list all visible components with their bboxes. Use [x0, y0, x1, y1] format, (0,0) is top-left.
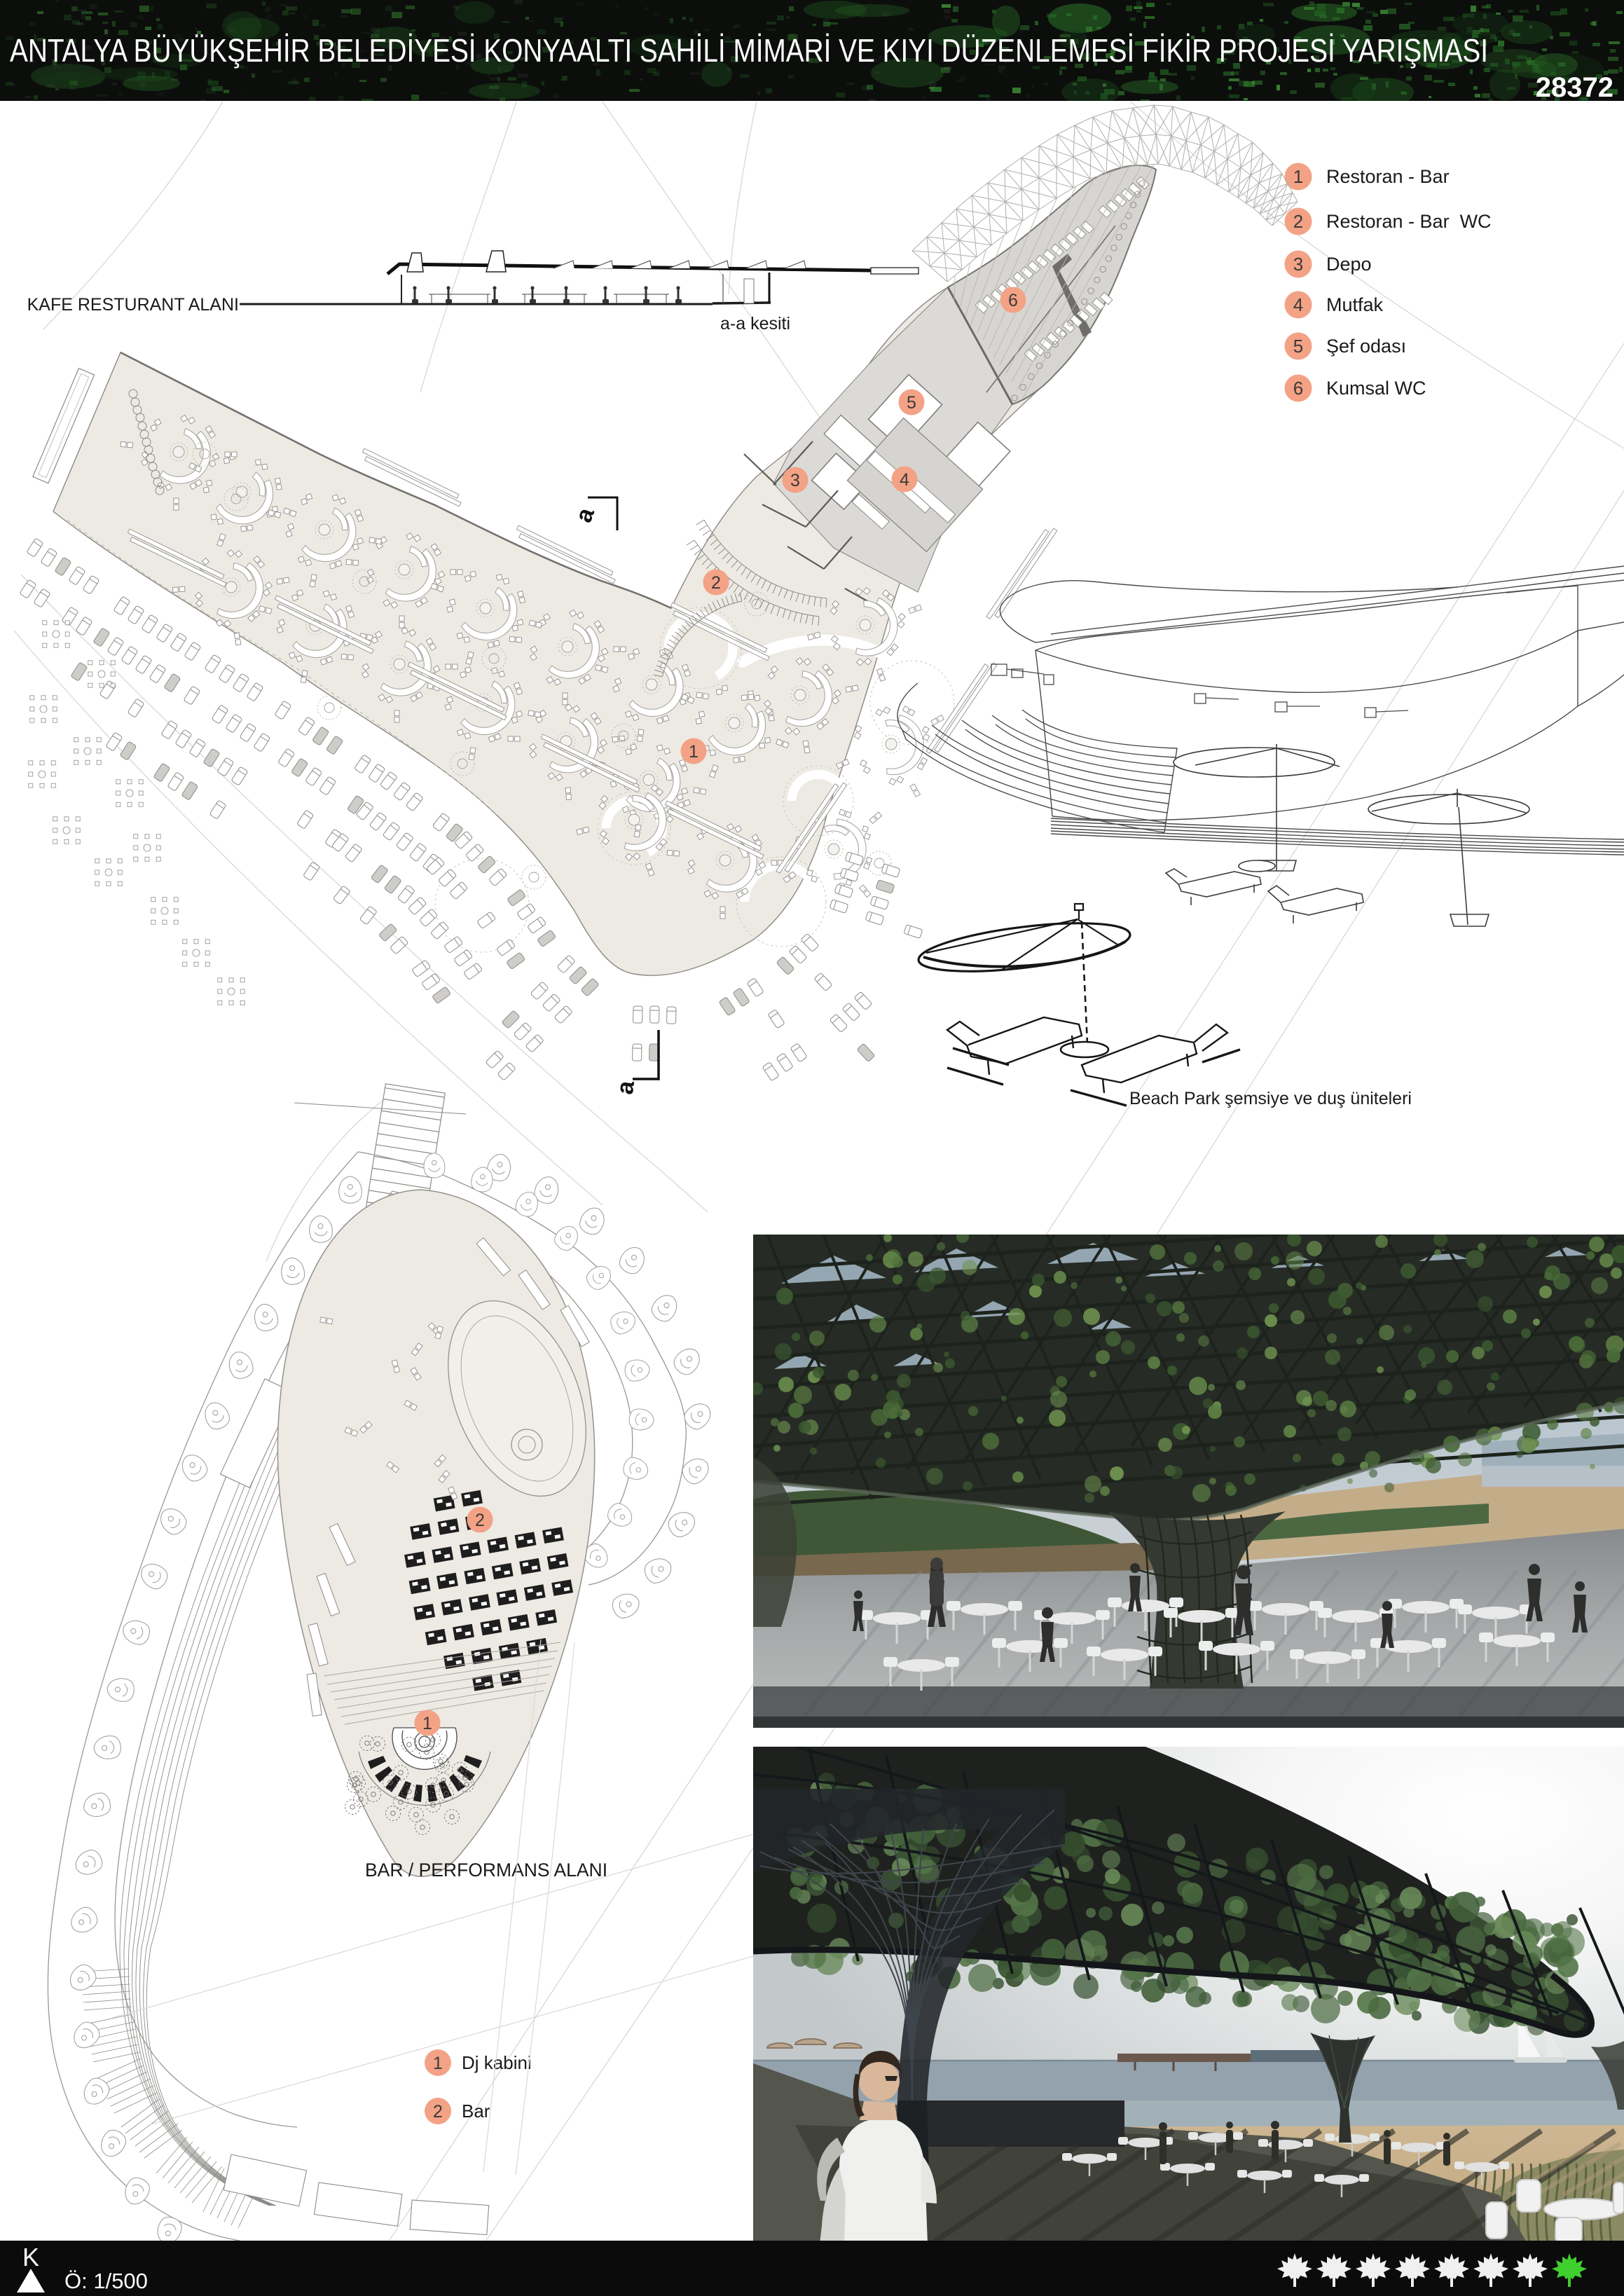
svg-text:Ö: 1/500: Ö: 1/500 [64, 2269, 148, 2293]
svg-text:Restoran - Bar WC: Restoran - Bar WC [1326, 211, 1492, 232]
svg-text:1: 1 [1293, 166, 1303, 187]
svg-text:5: 5 [907, 393, 916, 413]
svg-text:KAFE RESTURANT ALANI: KAFE RESTURANT ALANI [27, 295, 239, 315]
svg-text:3: 3 [1293, 254, 1303, 275]
svg-text:a-a kesiti: a-a kesiti [720, 314, 790, 334]
svg-text:Kumsal WC: Kumsal WC [1326, 378, 1426, 399]
svg-text:4: 4 [900, 470, 909, 490]
svg-text:1: 1 [689, 742, 699, 762]
svg-text:2: 2 [475, 1511, 485, 1530]
svg-text:3: 3 [790, 471, 800, 490]
svg-text:1: 1 [422, 1714, 432, 1733]
svg-text:1: 1 [433, 2054, 443, 2073]
svg-text:Beach Park şemsiye ve duş ünit: Beach Park şemsiye ve duş üniteleri [1129, 1089, 1412, 1108]
svg-text:2: 2 [433, 2102, 443, 2122]
svg-text:5: 5 [1293, 336, 1303, 357]
svg-text:4: 4 [1293, 294, 1303, 315]
svg-text:Şef odası: Şef odası [1326, 336, 1406, 357]
svg-text:Restoran - Bar: Restoran - Bar [1326, 166, 1450, 187]
svg-text:2: 2 [711, 573, 721, 593]
svg-text:a: a [570, 504, 600, 526]
svg-text:Depo: Depo [1326, 254, 1372, 275]
svg-text:Bar: Bar [462, 2101, 490, 2122]
svg-text:BAR / PERFORMANS ALANI: BAR / PERFORMANS ALANI [365, 1860, 607, 1881]
svg-text:K: K [22, 2243, 39, 2271]
svg-text:6: 6 [1293, 378, 1303, 399]
svg-text:6: 6 [1008, 291, 1018, 310]
svg-text:a: a [612, 1078, 640, 1096]
svg-text:2: 2 [1293, 211, 1303, 232]
svg-text:Mutfak: Mutfak [1326, 294, 1384, 315]
